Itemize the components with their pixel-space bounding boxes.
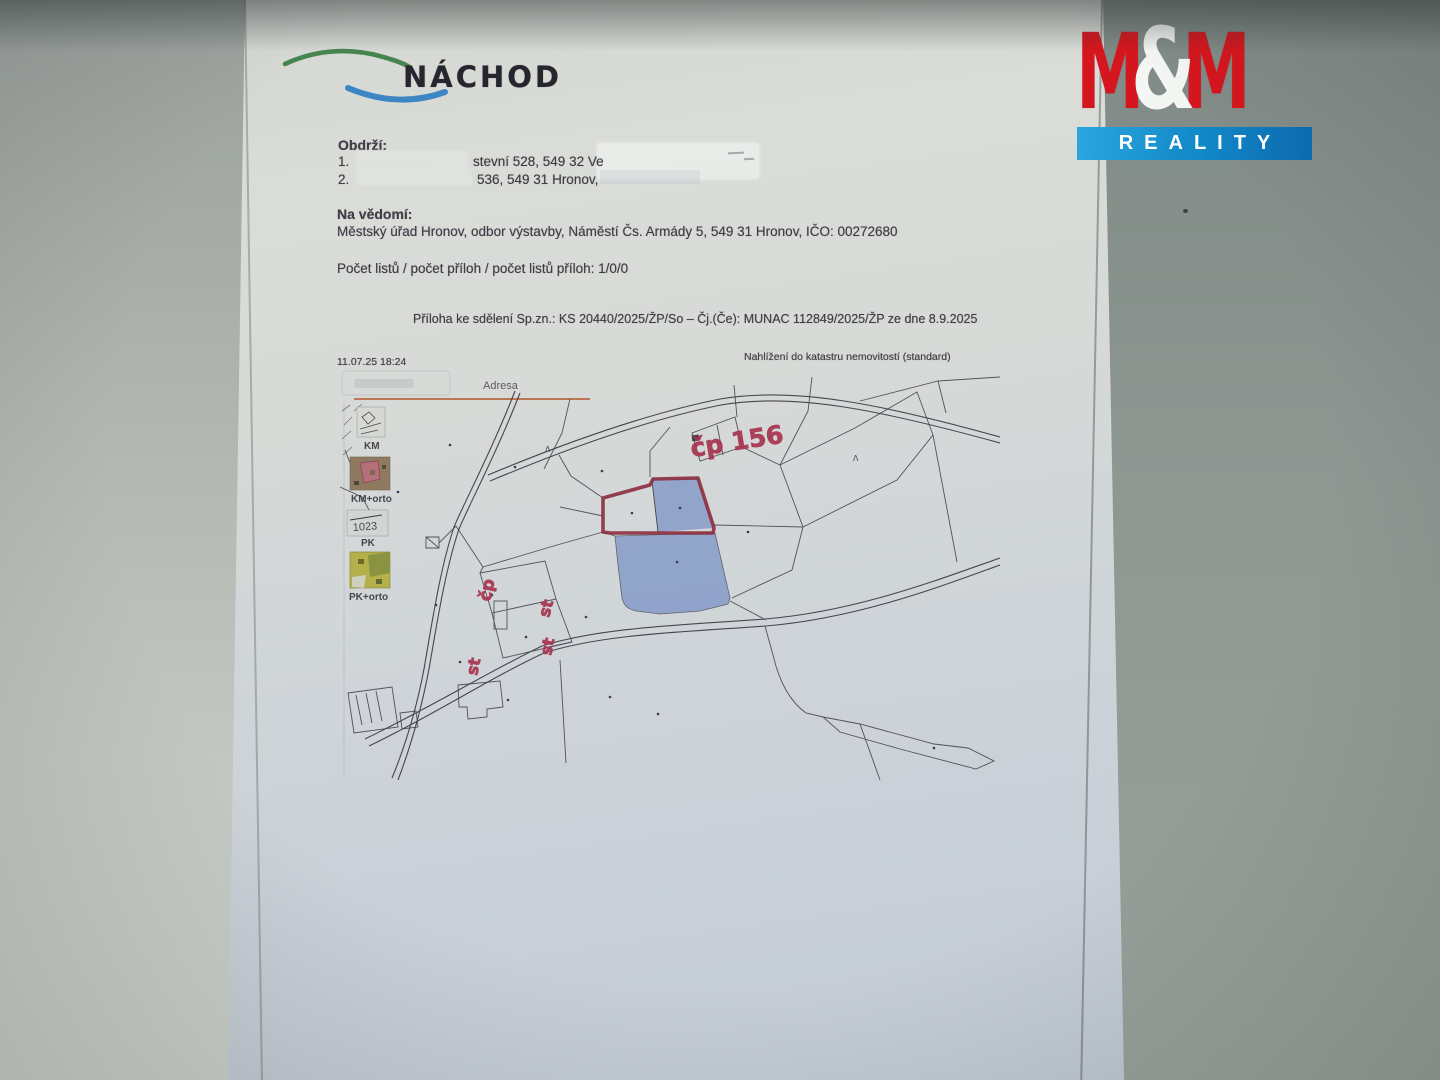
fyi-heading: Na vědomí:	[337, 206, 412, 223]
recipient-2-text: 536, 549 31 Hronov,	[477, 171, 598, 188]
page-counts-line: Počet listů / počet příloh / počet listů…	[337, 260, 628, 277]
mm-reality-text: REALITY	[1108, 132, 1282, 155]
tab-adresa: Adresa	[483, 380, 519, 392]
annotation-st: st	[535, 597, 558, 619]
photo-top-shadow	[0, 0, 1440, 52]
recipient-2-number: 2.	[338, 171, 349, 188]
highlighted-parcel-upper	[652, 478, 714, 532]
mm-reality-logo: M&M REALITY	[1072, 36, 1334, 164]
recipient-1-text: stevní 528, 549 32 Ve	[473, 153, 604, 170]
layer-km-thumb[interactable]	[357, 407, 385, 437]
nachod-logo-text: NÁCHOD	[403, 60, 562, 94]
faded-text-smudge	[600, 170, 700, 184]
highlighted-parcel-lower	[615, 533, 730, 614]
layer-pk-label: PK	[361, 538, 376, 549]
annotation-st: st	[536, 636, 558, 657]
layer-pk-orto-thumb[interactable]	[350, 552, 390, 588]
tree-symbol: Λ	[853, 454, 859, 463]
fyi-line: Městský úřad Hronov, odbor výstavby, Nám…	[337, 223, 898, 240]
annotation-cp: čp	[475, 577, 499, 603]
tree-symbol: Λ	[545, 445, 551, 454]
layer-pk-orto-label: PK+orto	[349, 592, 388, 603]
annotation-cp156: čp 156	[688, 420, 785, 463]
pk-thumb-note: 1023	[352, 520, 377, 534]
green-swoosh-icon	[285, 51, 408, 66]
wall-speck	[1183, 209, 1188, 213]
background-wall-left	[0, 0, 246, 1080]
redacted-name-2	[357, 169, 471, 185]
layer-pk-thumb[interactable]: 1023	[347, 510, 388, 536]
mm-reality-bar: REALITY	[1077, 127, 1312, 160]
redacted-name-1	[357, 151, 467, 167]
layer-km-orto-thumb[interactable]	[350, 457, 390, 490]
annotation-st: st	[462, 656, 484, 677]
layer-km-label: KM	[364, 441, 380, 452]
recipient-1-number: 1.	[338, 153, 349, 170]
search-ghost-text	[354, 379, 414, 388]
layer-km-orto-label: KM+orto	[351, 494, 392, 505]
photo-of-document: NÁCHOD Obdrží: 1. stevní 528, 549 32 Ve …	[0, 0, 1440, 1080]
cadastral-map: Adresa	[340, 355, 1000, 780]
attachment-reference-line: Příloha ke sdělení Sp.zn.: KS 20440/2025…	[413, 312, 977, 326]
